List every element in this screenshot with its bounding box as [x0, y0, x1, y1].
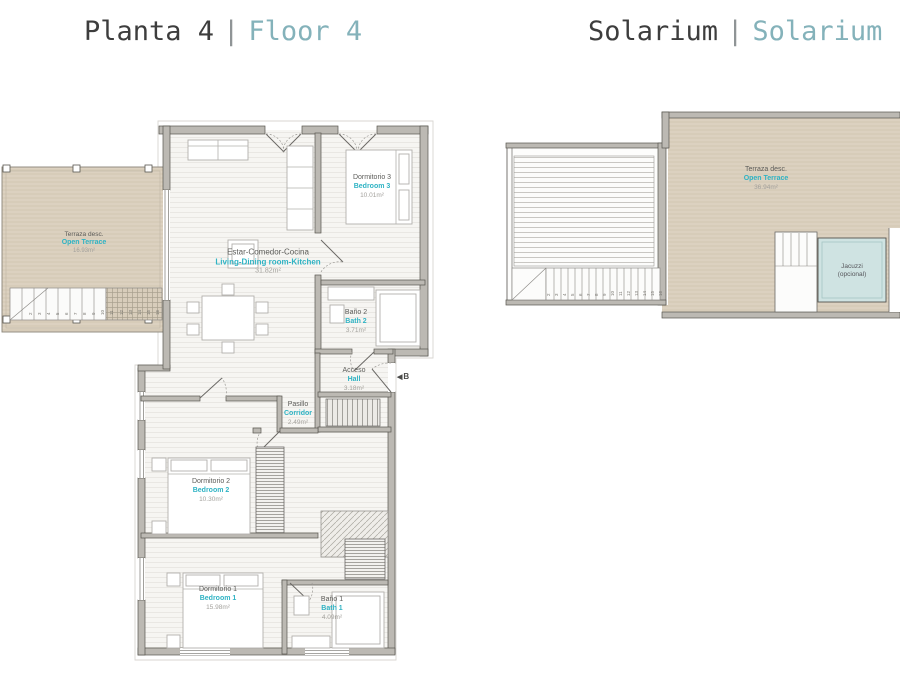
stair-number: 16 — [658, 290, 663, 296]
room-area: 3.18m² — [343, 385, 366, 393]
jacuzzi-label-line1: Jacuzzi — [838, 263, 867, 271]
room-name-es: Terraza desc. — [62, 231, 107, 239]
stair-number: 11 — [109, 310, 114, 315]
room-area: 10.30m² — [192, 496, 230, 504]
label-floor4-bedroom1: Dormitorio 1 Bedroom 1 15.98m² — [199, 586, 237, 612]
label-floor4-hall: Acceso Hall 3.18m² — [343, 367, 366, 393]
room-area: 10.01m² — [353, 192, 391, 200]
label-floor4-living: Estar-Comedor-Cocina Living-Dining room-… — [215, 248, 320, 277]
floor4-staircase: 2 3 4 5 6 7 8 9 10 11 12 13 14 15 — [10, 288, 162, 320]
label-floor4-corridor: Pasillo Corridor 2.49m² — [284, 401, 312, 427]
sofa — [188, 140, 248, 160]
room-name-en: Hall — [343, 376, 366, 385]
room-name-en: Bedroom 1 — [199, 595, 237, 604]
jacuzzi-label-line2: (opcional) — [838, 271, 867, 279]
room-name-es: Pasillo — [284, 401, 312, 410]
label-solarium-terrace: Terraza desc. Open Terrace 36.94m² — [744, 166, 789, 192]
solarium-pergola: 2 3 4 5 6 7 8 9 10 11 12 13 14 15 — [506, 143, 668, 305]
kitchen-unit — [287, 146, 313, 230]
room-name-es: Baño 2 — [345, 309, 367, 318]
floorplans-drawing: 2 3 4 5 6 7 8 9 10 11 12 13 14 15 — [0, 0, 900, 675]
floorplan-page: Planta 4|Floor 4 Solarium|Solarium — [0, 0, 900, 675]
room-name-en: Corridor — [284, 410, 312, 419]
room-name-es: Dormitorio 1 — [199, 586, 237, 595]
room-area: 4.09m² — [321, 614, 343, 622]
stair-core — [326, 399, 380, 426]
room-name-es: Baño 1 — [321, 596, 343, 605]
room-name-es: Dormitorio 3 — [353, 174, 391, 183]
stair-number: 14 — [642, 290, 647, 296]
room-name-en: Living-Dining room-Kitchen — [215, 258, 320, 268]
stair-number: 15 — [650, 290, 655, 296]
stair-number: 15 — [146, 309, 151, 315]
room-name-es: Terraza desc. — [744, 166, 789, 175]
stair-number: 13 — [634, 290, 639, 296]
label-jacuzzi: Jacuzzi (opcional) — [838, 263, 867, 279]
label-floor4-bath2: Baño 2 Bath 2 3.71m² — [345, 309, 367, 335]
room-name-en: Open Terrace — [744, 175, 789, 184]
wardrobe-bedroom2 — [256, 447, 284, 533]
room-name-en: Bedroom 2 — [192, 487, 230, 496]
solarium-step-inset — [775, 232, 817, 312]
room-name-en: Bath 2 — [345, 318, 367, 327]
room-name-es: Dormitorio 2 — [192, 478, 230, 487]
floor4-plan: 2 3 4 5 6 7 8 9 10 11 12 13 14 15 — [2, 121, 433, 660]
stair-number: 12 — [626, 290, 631, 296]
wardrobe-hall — [345, 539, 385, 579]
entrance-marker-letter: B — [403, 372, 409, 381]
room-area: 15.98m² — [199, 604, 237, 612]
stair-number: 10 — [610, 290, 615, 296]
label-floor4-terrace: Terraza desc. Open Terrace 16.93m² — [62, 231, 107, 255]
solarium-right-notch — [889, 228, 900, 312]
label-floor4-bedroom2: Dormitorio 2 Bedroom 2 10.30m² — [192, 478, 230, 504]
entrance-marker: ◀ B — [397, 372, 409, 381]
room-area: 3.71m² — [345, 327, 367, 335]
room-area: 16.93m² — [62, 248, 107, 256]
room-name-en: Bedroom 3 — [353, 183, 391, 192]
room-area: 2.49m² — [284, 419, 312, 427]
stair-number: 16 — [155, 309, 160, 315]
stair-number: 11 — [618, 291, 623, 296]
stair-number: 12 — [119, 309, 124, 315]
room-area: 36.94m² — [744, 184, 789, 192]
stair-number: 13 — [128, 309, 133, 315]
label-floor4-bedroom3: Dormitorio 3 Bedroom 3 10.01m² — [353, 174, 391, 200]
stair-number: 14 — [137, 309, 142, 315]
stair-number: 10 — [100, 309, 105, 315]
label-floor4-bath1: Baño 1 Bath 1 4.09m² — [321, 596, 343, 622]
room-name-es: Acceso — [343, 367, 366, 376]
solarium-plan: 2 3 4 5 6 7 8 9 10 11 12 13 14 15 — [506, 112, 900, 318]
entrance-arrow-icon: ◀ — [397, 373, 402, 381]
room-name-es: Estar-Comedor-Cocina — [215, 248, 320, 258]
room-name-en: Open Terrace — [62, 239, 107, 248]
room-name-en: Bath 1 — [321, 605, 343, 614]
room-area: 31.82m² — [215, 268, 320, 277]
solarium-staircase: 2 3 4 5 6 7 8 9 10 11 12 13 14 15 — [512, 268, 663, 300]
